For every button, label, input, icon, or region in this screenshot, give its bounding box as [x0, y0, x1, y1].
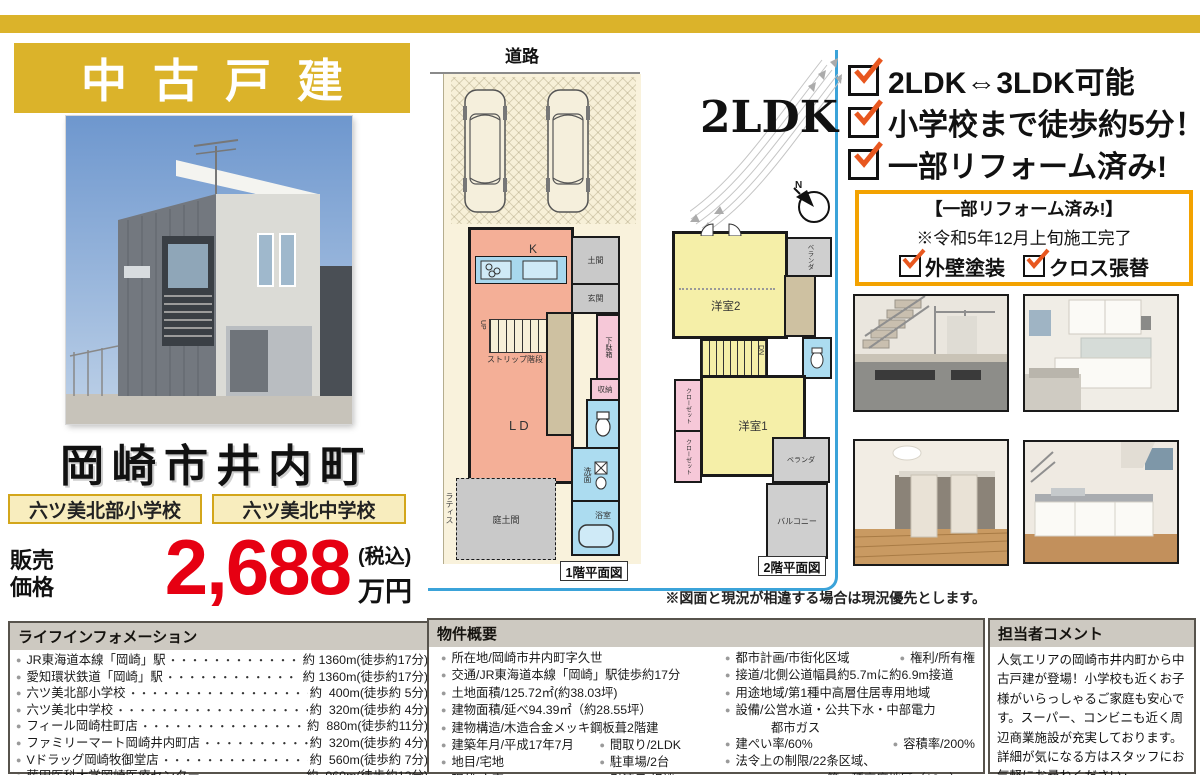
- room-getabako: 下駄箱: [596, 314, 620, 380]
- overview-item: ●建ぺい率/60%●容積率/200%: [723, 736, 977, 753]
- life-item: ●愛知環状鉄道「岡崎」駅・・・・・・・・・・・・・・・・・・・・・・約 1360…: [10, 670, 434, 686]
- car-icon: [546, 86, 590, 216]
- room-veranda-mid: ベランダ: [772, 437, 830, 483]
- school-badge-junior: 六ツ美北中学校: [212, 494, 406, 524]
- double-door-icon: [699, 222, 743, 236]
- price-unit: 万円: [358, 570, 412, 609]
- price-tax-note: (税込): [358, 546, 411, 568]
- overview-item: ●建物構造/木造合金メッキ鋼板葺2階建: [439, 720, 715, 737]
- property-overview-box: 物件概要 ●所在地/岡崎市井内町字久世 ●交通/JR東海道本線「岡崎」駅徒歩約1…: [427, 618, 985, 774]
- life-item: ●ファミリーマート岡崎井内町店・・・・・・・・・・・・・・・・・・・・・・約 3…: [10, 736, 434, 752]
- photo-interior-kitchen: [1023, 440, 1179, 564]
- life-item: ●フィール岡崎柱町店・・・・・・・・・・・・・・・・・・・・・・約 880m(徒…: [10, 719, 434, 735]
- road-label: 道路: [505, 42, 539, 67]
- banner-title: 中古戸建: [55, 45, 369, 111]
- photo-interior-closet-room: [853, 439, 1009, 566]
- exterior-photo-image: [66, 116, 352, 424]
- room-veranda-top: ベランダ: [786, 237, 832, 277]
- stairs-dn-label: DN: [757, 345, 764, 355]
- life-information-title: ライフインフォメーション: [10, 623, 434, 650]
- overview-item: ●都市計画/市街化区域●権利/所有権: [723, 650, 977, 667]
- reform-title: 【一部リフォーム済み!】: [925, 196, 1123, 221]
- feature-item: 一部リフォーム済み!: [848, 144, 1167, 184]
- photo-interior-cupboard: [1023, 294, 1179, 412]
- room-divider-dotted: [679, 288, 775, 290]
- room-hall-2f: [784, 275, 816, 337]
- checkbox-icon: [848, 149, 879, 180]
- room-hall: [546, 312, 573, 436]
- overview-item: ●用途地域/第1種中高層住居専用地域: [723, 685, 977, 702]
- photo-interior-stairs: [853, 294, 1009, 412]
- life-item: ●Vドラッグ岡崎牧御堂店・・・・・・・・・・・・・・・・・・・・・・約 560m…: [10, 753, 434, 769]
- checkbox-icon: [848, 107, 879, 138]
- life-item: ●藤田医科大学岡崎医療センター・・・・・・・・・・・・・・・・・・・・・・約 9…: [10, 769, 434, 775]
- reform-info-box: 【一部リフォーム済み!】 ※令和5年12月上旬施工完了 外壁塗装 クロス張替: [855, 190, 1193, 286]
- room-genkan: 玄関: [571, 283, 620, 314]
- compass-north-label: N: [795, 180, 802, 191]
- room-toilet-1f: [586, 399, 620, 449]
- overview-item: ●設備/公営水道・公共下水・中部電力: [723, 702, 977, 719]
- kitchen-counter: [475, 256, 567, 284]
- overview-item-continuation: 第一種高度地区（18m）: [723, 771, 977, 775]
- overview-title: 物件概要: [429, 620, 983, 647]
- overview-item: ●交通/JR東海道本線「岡崎」駅徒歩約17分: [439, 667, 715, 684]
- overview-item: ●土地面積/125.72㎡(約38.03坪): [439, 685, 715, 702]
- price-amount: 2,688: [110, 528, 350, 606]
- flyer-page: 中古戸建: [0, 0, 1200, 775]
- plan2-caption: 2階平面図: [758, 556, 826, 576]
- school-badge-primary: 六ツ美北部小学校: [8, 494, 202, 524]
- room-closet-1: クローゼット: [674, 379, 702, 432]
- checkbox-icon: [848, 65, 879, 96]
- stairs-up-label: UP: [479, 320, 486, 330]
- car-icon: [463, 86, 507, 216]
- top-gold-strip: [0, 15, 1200, 33]
- feature-item: 小学校まで徒歩約5分！: [848, 102, 1200, 142]
- overview-item: ●建築年月/平成17年7月●間取り/2LDK: [439, 737, 715, 754]
- life-item: ●六ツ美北部小学校・・・・・・・・・・・・・・・・・・・・・・約 400m(徒歩…: [10, 686, 434, 702]
- exterior-photo: [66, 116, 352, 424]
- agent-comment-box: 担当者コメント 人気エリアの岡崎市井内町から中古戸建が登場！小学校も近くお子様が…: [988, 618, 1196, 774]
- overview-item: ●所在地/岡崎市井内町字久世: [439, 650, 715, 667]
- washbasin-icon: [593, 460, 609, 490]
- room-yoshitsu2: 洋室2: [672, 231, 788, 339]
- life-information-box: ライフインフォメーション ●JR東海道本線「岡崎」駅・・・・・・・・・・・・・・…: [8, 621, 436, 774]
- agent-comment-body: 人気エリアの岡崎市井内町から中古戸建が登場！小学校も近くお子様がいらっしゃるご家…: [990, 647, 1194, 775]
- reform-item: クロス張替: [1023, 252, 1149, 281]
- bathtub-icon: [578, 524, 614, 548]
- floorplan-disclaimer: ※図面と現況が相違する場合は現況優先とします。: [430, 588, 986, 608]
- lattice-label: ラティス: [444, 492, 455, 524]
- room-shuno: 収納: [590, 378, 620, 401]
- overview-item: ●地目/宅地●駐車場/2台: [439, 754, 715, 771]
- room-doma: 土間: [571, 236, 620, 285]
- room-closet-2: クローゼット: [674, 430, 702, 483]
- overview-item: ●法令上の制限/22条区域、: [723, 753, 977, 770]
- room-balcony: バルコニー: [766, 483, 828, 559]
- property-location: 岡崎市井内町: [0, 430, 432, 494]
- plan1-caption: 1階平面図: [560, 561, 628, 581]
- reform-note: ※令和5年12月上旬施工完了: [916, 224, 1131, 249]
- feature-item: 2LDK⇔3LDK可能: [848, 60, 1135, 100]
- room-label-k: K: [529, 242, 539, 256]
- reform-item: 外壁塗装: [899, 252, 1005, 281]
- price-label: 販売 価格: [10, 547, 54, 601]
- overview-item-continuation: 都市ガス: [723, 720, 977, 736]
- room-toilet-2f: [802, 337, 832, 379]
- overview-item: ●接道/北側公道幅員約5.7mに約6.9m接道: [723, 667, 977, 684]
- agent-comment-title: 担当者コメント: [990, 620, 1194, 647]
- overview-col-right: ●都市計画/市街化区域●権利/所有権 ●接道/北側公道幅員約5.7mに約6.9m…: [723, 650, 977, 775]
- toilet-icon: [810, 347, 824, 369]
- banner-title-box: 中古戸建: [14, 43, 410, 113]
- life-item: ●JR東海道本線「岡崎」駅・・・・・・・・・・・・・・・・・・・・・・約 136…: [10, 653, 434, 669]
- reform-items: 外壁塗装 クロス張替: [899, 252, 1149, 281]
- checkbox-icon: [899, 255, 921, 277]
- layout-type-label: 2LDK: [700, 92, 838, 143]
- stairs-2f: DN: [700, 339, 768, 377]
- stairs-label: ストリップ階段: [487, 354, 543, 365]
- toilet-icon: [594, 411, 612, 437]
- room-senmen: 洗面: [571, 447, 620, 502]
- room-bath: 浴室: [571, 500, 620, 556]
- room-niwadoma: 庭土間: [456, 478, 556, 560]
- checkbox-icon: [1023, 255, 1045, 277]
- life-item: ●六ツ美北中学校・・・・・・・・・・・・・・・・・・・・・・約 320m(徒歩約…: [10, 703, 434, 719]
- overview-item: ●建物面積/延べ94.39㎡（約28.55坪）: [439, 702, 715, 719]
- overview-col-left: ●所在地/岡崎市井内町字久世 ●交通/JR東海道本線「岡崎」駅徒歩約17分 ●土…: [439, 650, 715, 775]
- room-label-ld: LD: [509, 418, 532, 433]
